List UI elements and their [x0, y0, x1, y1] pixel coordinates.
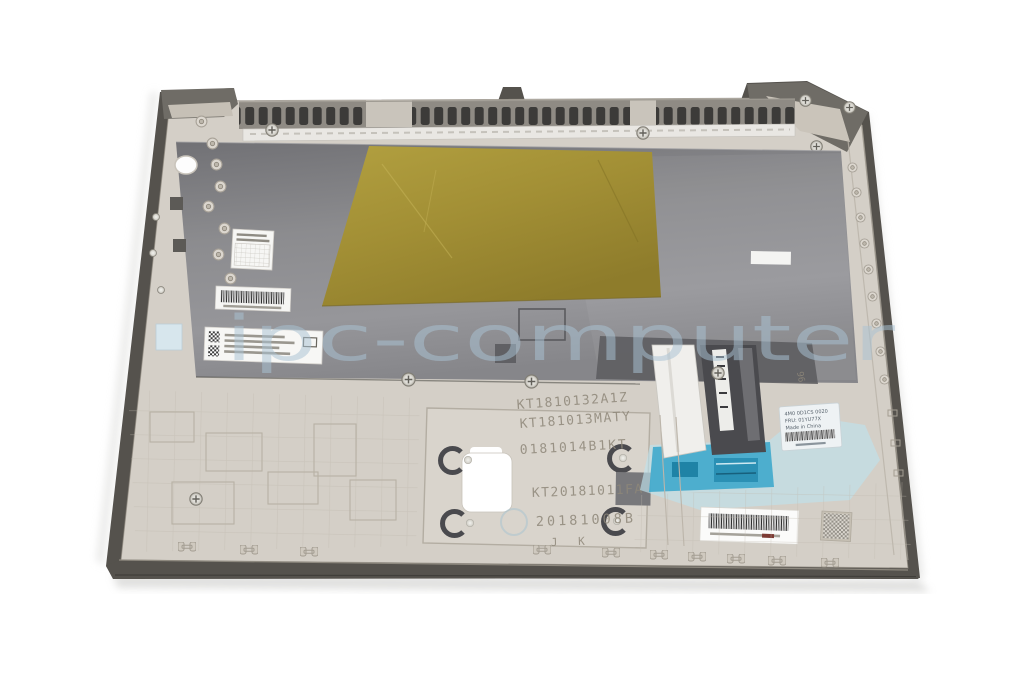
- speaker-grommet: [175, 156, 197, 174]
- plate-small-label: [751, 251, 791, 265]
- frame-square-hole: [170, 197, 183, 210]
- molded-rib-field: [633, 482, 912, 560]
- fpc-connector: [672, 462, 698, 477]
- fpc-connector: [714, 458, 758, 482]
- frame-square-hole: [173, 239, 186, 252]
- stamp-code: J K: [551, 535, 592, 549]
- grid-check-label: [231, 229, 274, 270]
- palmrest-photo-canvas: KT1810132A1Z KT181013MATY 0181014B1KT KT…: [0, 0, 1024, 680]
- clear-plastic-piece: [156, 324, 182, 350]
- product-photo: KT1810132A1Z KT181013MATY 0181014B1KT KT…: [0, 0, 1024, 680]
- molded-rib-field: [128, 390, 420, 552]
- hinge-mount-left: [161, 88, 238, 119]
- qr-code-icon: [208, 331, 219, 342]
- qr-code-icon: [208, 345, 219, 356]
- fru-label: 4M0 0D1CS 0020 FRU: 01YU77X Made in Chin…: [779, 403, 842, 451]
- watermark-text: ipc-computer: [225, 302, 896, 375]
- gold-insulation-film: [322, 146, 661, 306]
